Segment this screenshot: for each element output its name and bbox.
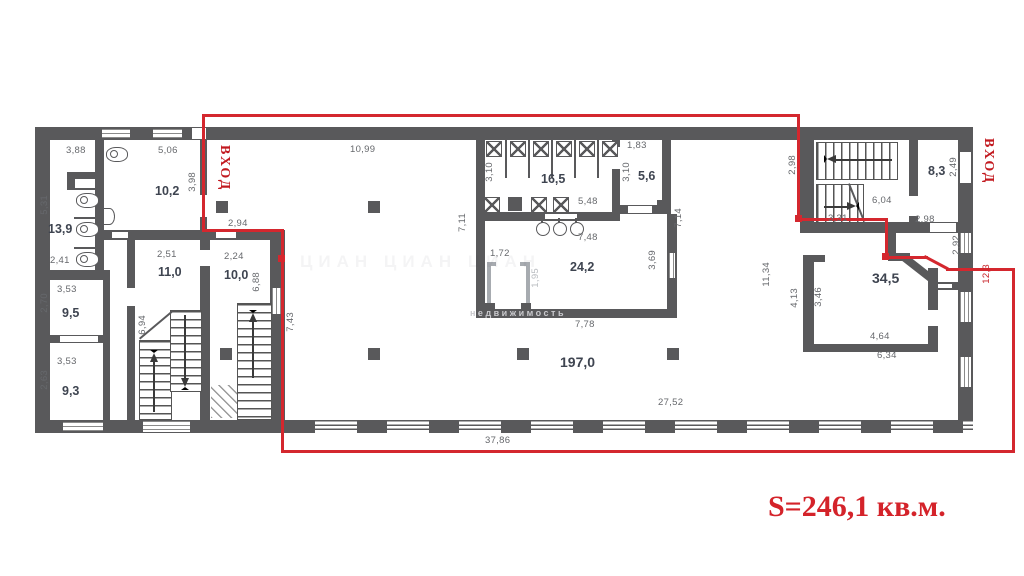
stair-arrow [832,159,892,161]
stall-partition [74,188,96,190]
dimension-label: 2,98 [915,215,935,225]
entrance-label: ВХОД [216,145,232,191]
dimension-label: 7,14 [674,208,684,228]
room-area-label: 197,0 [560,354,595,370]
shower-stall-icon [531,197,547,213]
room-area-label: 13,9 [48,222,72,236]
dimension-label: 5,06 [158,146,178,156]
boundary-line [202,114,800,117]
shower-stall-icon [486,141,502,157]
wall [803,344,938,352]
dimension-label: 5,31 [40,195,50,215]
room-area-label: 5,6 [638,169,655,183]
door-opening [928,310,938,326]
washbasin-icon [553,222,567,236]
stall-partition [74,217,96,219]
column [368,348,380,360]
shower-stall-icon [556,141,572,157]
dimension-label: 11,34 [762,262,772,287]
dimension-label: 3,46 [814,287,824,307]
window [153,129,182,138]
room-area-label: 9,3 [62,384,79,398]
stall-partition [574,140,576,178]
sink-icon [104,208,115,225]
under-stair-hatch [211,385,237,418]
window [669,253,675,278]
dimension-label: 10,99 [350,145,375,155]
toilet-icon [106,147,128,162]
toilet-icon [76,252,99,267]
dimension-label: 2,24 [224,252,244,262]
boundary-marker [882,253,889,260]
room-area-label: 10,2 [155,184,179,198]
stair-arrow [847,202,859,210]
dimension-label: 6,88 [252,272,262,292]
dimension-label: 6,04 [872,196,892,206]
toilet-icon [110,150,118,158]
shower-stall-icon [484,197,500,213]
window [63,422,103,431]
dimension-label: 5,48 [578,197,598,207]
door-opening [60,336,98,342]
washbasin-icon [536,222,550,236]
boundary-marker [278,255,285,262]
window-wall [285,420,973,433]
column [517,348,529,360]
dimension-label: 6,34 [877,351,897,361]
shower-stall-icon [510,141,526,157]
boundary-line [946,268,1014,271]
window [102,129,130,138]
boundary-line [1012,268,1015,453]
washbasin-icon [558,218,560,223]
floor-plan: ВХОД ВХОД 3,88 5,06 5,31 2,41 3,98 2,94 … [0,0,1024,576]
dimension-label: 3,88 [66,146,86,156]
dimension-label: 3,69 [648,250,658,270]
dimension-label: 2,98 [788,155,798,175]
column [508,197,522,211]
shower-stall-icon [579,141,595,157]
door-opening [960,152,971,183]
column [216,201,228,213]
dimension-label: 3,31 [828,214,848,224]
boundary-line [202,114,205,232]
toilet-icon [80,255,88,263]
column [667,348,679,360]
dimension-label: 6,94 [138,315,148,335]
shower-stall-icon [553,197,569,213]
toilet-icon [80,196,88,204]
boundary-line [281,229,284,453]
dimension-label: 3,10 [485,162,495,182]
dimension-label: 7,11 [458,213,468,232]
dimension-label: 1,83 [627,141,647,151]
shower-stall-icon [602,141,618,157]
boundary-line [202,229,284,232]
dimension-label: 27,52 [658,398,683,408]
column [220,348,232,360]
boundary-marker [795,215,802,222]
window [960,357,971,387]
dimension-label: 2,51 [157,250,177,260]
dimension-label: 2,63 [40,370,50,390]
dimension-label: 2,92 [952,235,962,255]
wall [127,240,135,420]
watermark: недвижимость [470,309,566,318]
watermark: ЦИАН ЦИАН ЦИАН [300,252,541,272]
stair-arrow [184,315,186,379]
dimension-label: 7,78 [575,320,595,330]
total-area-label: S=246,1 кв.м. [768,490,946,524]
stair-arrow [150,350,158,362]
dimension-label: 2,70 [40,293,50,313]
dimension-label: 37,86 [485,436,510,446]
toilet-icon [76,222,99,237]
stall-partition [74,247,96,249]
room-area-label: 16,5 [541,172,565,186]
dimension-label: 3,98 [188,172,198,192]
dimension-label: 12,3 [982,264,992,284]
dimension-label: 3,10 [622,162,632,182]
stall-partition [528,140,530,178]
room-area-label: 34,5 [872,270,899,286]
entrance-label: ВХОД [980,138,996,184]
door-opening [127,288,135,306]
dimension-label: 2,41 [50,256,70,266]
dimension-label: 2,49 [949,157,959,177]
dimension-label: 3,53 [57,285,77,295]
toilet-icon [76,193,99,208]
boundary-line [281,450,1015,453]
dimension-label: 7,43 [286,312,296,332]
washbasin-icon [541,218,543,223]
room-area-label: 8,3 [928,164,945,178]
room-area-label: 9,5 [62,306,79,320]
shower-stall-icon [533,141,549,157]
dimension-label: 4,13 [790,288,800,308]
stair-arrow [824,155,836,163]
room-area-label: 24,2 [570,260,594,274]
wall [803,255,825,262]
door-opening [545,214,577,219]
stall-partition [505,140,507,178]
stair-arrow [249,310,257,322]
room-area-label: 10,0 [224,268,248,282]
stair-arrow [153,358,155,412]
door-opening [938,284,952,288]
column [368,201,380,213]
stair-arrow [181,378,189,390]
dimension-label: 2,94 [228,219,248,229]
door-opening [216,232,236,238]
wall [67,172,95,179]
door-opening [112,232,128,238]
door-opening [628,206,652,213]
entrance-steps [143,421,190,432]
wall [657,200,670,213]
room-area-label: 11,0 [158,265,182,279]
dimension-label: 3,53 [57,357,77,367]
toilet-icon [80,225,88,233]
wall [35,270,110,280]
stall-partition [597,140,599,178]
door-opening [909,196,918,216]
dimension-label: 7,48 [578,233,598,243]
stair-arrow [252,318,254,378]
wall [103,280,110,420]
stair-arrow [824,206,848,208]
door-opening [200,250,210,266]
dimension-label: 4,64 [870,332,890,342]
washbasin-icon [575,218,577,223]
window [960,292,971,322]
boundary-line [886,256,928,259]
